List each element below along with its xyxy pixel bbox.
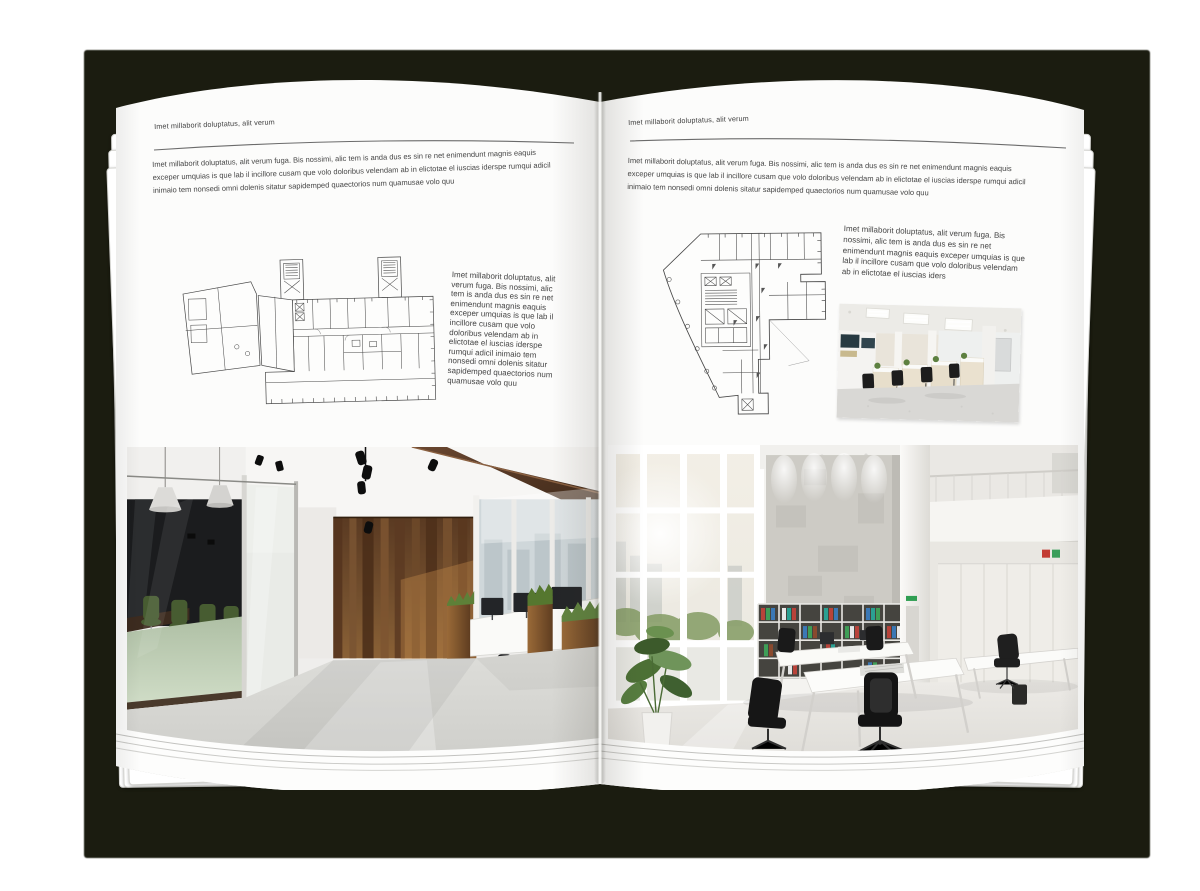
left-page-header: Imet millaborit doluptatus, alit verum [154, 117, 275, 131]
office-workstations-photo [837, 304, 1022, 423]
right-page-intro: Imet millaborit doluptatus, alit verum f… [627, 154, 1038, 202]
book-spine [594, 92, 606, 784]
floor-plan-wide-building [158, 236, 454, 410]
left-page: Imet millaborit doluptatus, alit verum I… [116, 66, 600, 790]
floor-plan-irregular-building [646, 220, 836, 422]
right-page-header: Imet millaborit doluptatus, alit verum [628, 114, 749, 127]
right-header-rule [628, 136, 1068, 152]
right-page-side-text: Imet millaborit doluptatus, alit verum f… [842, 224, 1028, 286]
right-page-curl [600, 714, 1084, 790]
left-page-curl [116, 714, 600, 790]
brochure-mockup: Imet millaborit doluptatus, alit verum I… [0, 0, 1200, 891]
right-page: Imet millaborit doluptatus, alit verum I… [600, 66, 1084, 790]
left-page-side-text: Imet millaborit doluptatus, alit verum f… [447, 270, 566, 390]
